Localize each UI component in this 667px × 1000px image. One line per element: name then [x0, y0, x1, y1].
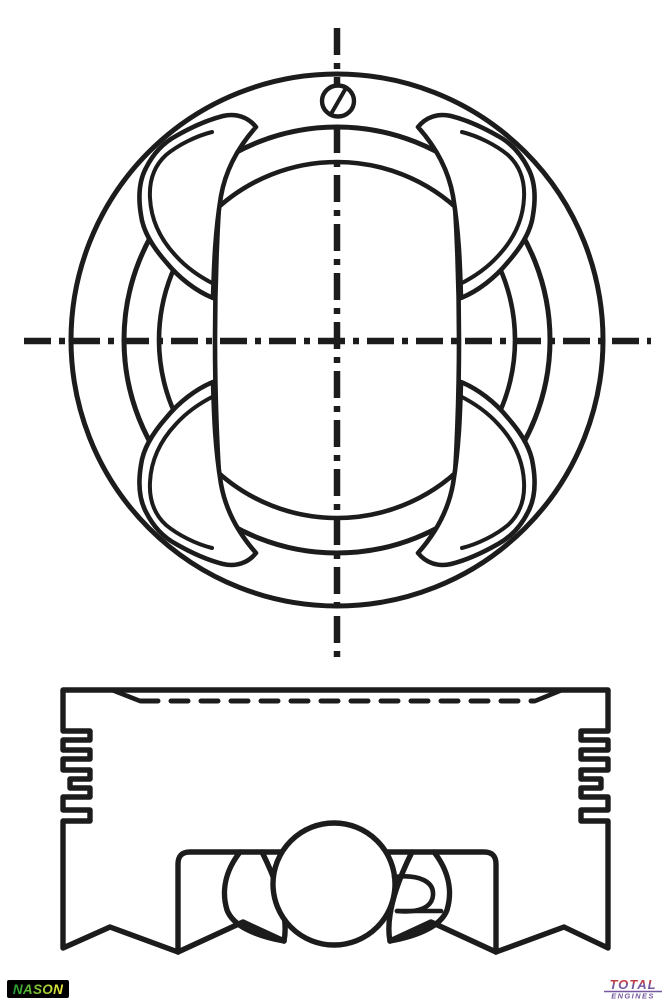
nason-logo-text: NASON	[13, 982, 63, 997]
wrist-pin-circle	[273, 823, 395, 945]
nason-logo: NASON	[7, 980, 69, 998]
page: NASON TOTAL ENGINES	[0, 0, 667, 1000]
piston-top-view	[24, 28, 651, 657]
piston-side-view	[63, 690, 608, 952]
engines-logo-text: ENGINES	[611, 992, 655, 1000]
piston-technical-drawing	[0, 0, 667, 1000]
total-logo-text: TOTAL	[609, 978, 656, 992]
total-engines-logo: TOTAL ENGINES	[600, 978, 666, 1000]
